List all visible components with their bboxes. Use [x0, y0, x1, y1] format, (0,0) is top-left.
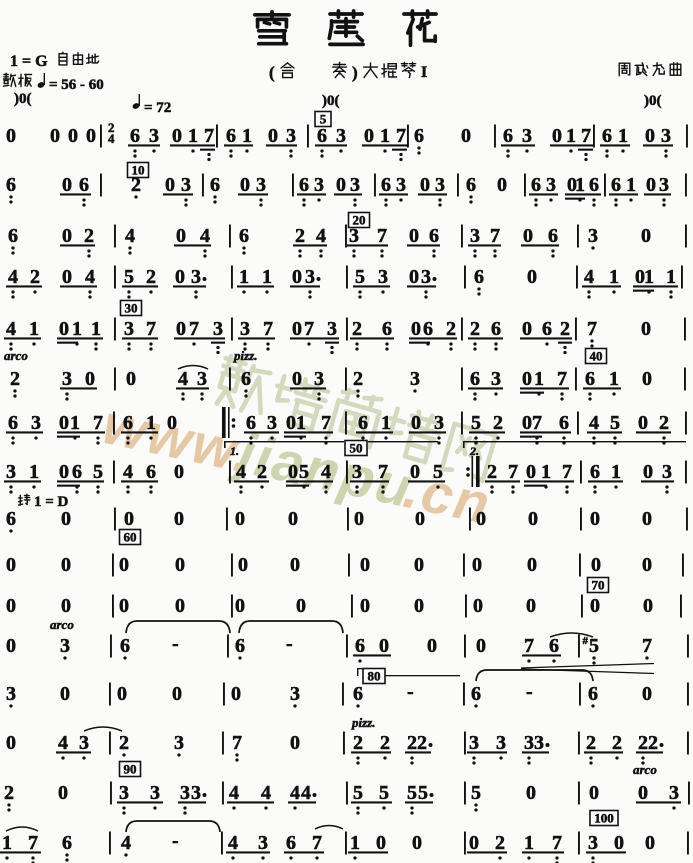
svg-text:2: 2	[146, 266, 156, 288]
svg-text:7: 7	[312, 832, 322, 854]
svg-text:5: 5	[379, 782, 389, 804]
svg-text:5: 5	[355, 266, 365, 288]
svg-text:4: 4	[178, 368, 188, 390]
svg-text:)0(: )0(	[322, 93, 340, 109]
svg-text:0: 0	[175, 266, 185, 288]
svg-text:1: 1	[524, 832, 534, 854]
svg-text:0: 0	[473, 595, 483, 617]
svg-text:0: 0	[292, 266, 302, 288]
svg-text:3: 3	[352, 461, 362, 483]
svg-text:0: 0	[292, 318, 302, 340]
svg-text:0: 0	[85, 368, 95, 390]
svg-text:7: 7	[587, 318, 597, 340]
svg-text:3: 3	[174, 732, 184, 754]
svg-text:1: 1	[611, 461, 621, 483]
svg-text:6: 6	[72, 461, 82, 483]
svg-text:0: 0	[172, 683, 182, 705]
svg-text:3: 3	[496, 732, 506, 754]
svg-text:6: 6	[130, 125, 140, 147]
svg-text:0: 0	[552, 125, 562, 147]
svg-text:6: 6	[62, 832, 72, 854]
svg-text:0: 0	[364, 125, 374, 147]
svg-text:3: 3	[659, 174, 669, 196]
svg-text:0: 0	[62, 174, 72, 196]
svg-text:3: 3	[181, 174, 191, 196]
svg-text:0: 0	[410, 461, 420, 483]
svg-text:5: 5	[471, 782, 481, 804]
svg-text:6: 6	[355, 635, 365, 657]
svg-text:0: 0	[126, 368, 136, 390]
svg-text:2: 2	[84, 225, 94, 247]
svg-text:6: 6	[548, 225, 558, 247]
svg-text:2: 2	[493, 412, 503, 434]
svg-text:5: 5	[418, 782, 428, 804]
svg-text:)0(: )0(	[644, 93, 662, 109]
svg-text:3: 3	[327, 318, 337, 340]
svg-text:6: 6	[414, 125, 424, 147]
svg-text:3: 3	[305, 266, 315, 288]
svg-text:0: 0	[469, 832, 479, 854]
svg-text:6: 6	[589, 174, 599, 196]
svg-text:3: 3	[6, 683, 16, 705]
svg-text:6: 6	[474, 266, 484, 288]
svg-text:7: 7	[321, 412, 331, 434]
svg-text:2: 2	[119, 732, 129, 754]
svg-text:3: 3	[491, 368, 501, 390]
svg-text:3: 3	[31, 412, 41, 434]
svg-text:4: 4	[123, 461, 133, 483]
svg-text:6: 6	[317, 125, 327, 147]
svg-text:3: 3	[524, 732, 534, 754]
svg-text:0: 0	[231, 683, 241, 705]
svg-text:6: 6	[6, 508, 16, 530]
svg-text:6: 6	[429, 225, 439, 247]
svg-text:0: 0	[50, 125, 60, 147]
svg-text:6: 6	[299, 174, 309, 196]
svg-text:2: 2	[352, 318, 362, 340]
svg-text:6: 6	[542, 318, 552, 340]
svg-text:1: 1	[566, 125, 576, 147]
svg-text:0: 0	[526, 461, 536, 483]
svg-text:arco: arco	[50, 617, 74, 632]
svg-text:3: 3	[396, 174, 406, 196]
svg-text:0: 0	[590, 595, 600, 617]
svg-text:3: 3	[286, 125, 296, 147]
svg-text:2: 2	[638, 732, 648, 754]
svg-text:2: 2	[470, 318, 480, 340]
svg-text:0: 0	[290, 732, 300, 754]
svg-text:0: 0	[527, 266, 537, 288]
svg-text:3: 3	[522, 125, 532, 147]
svg-text:0: 0	[58, 782, 68, 804]
svg-text:0: 0	[86, 125, 96, 147]
svg-text:6: 6	[8, 225, 18, 247]
svg-text:0: 0	[119, 595, 129, 617]
svg-text:0: 0	[414, 554, 424, 576]
svg-text:3: 3	[79, 732, 89, 754]
svg-text:pizz.: pizz.	[233, 348, 257, 363]
svg-text:3: 3	[240, 318, 250, 340]
svg-text:3: 3	[350, 174, 360, 196]
svg-text:6: 6	[353, 683, 363, 705]
svg-text:1: 1	[350, 832, 360, 854]
svg-text:0: 0	[645, 832, 655, 854]
svg-text:3: 3	[378, 266, 388, 288]
svg-text:6: 6	[241, 368, 251, 390]
svg-text:0: 0	[614, 832, 624, 854]
svg-text:0: 0	[336, 174, 346, 196]
svg-text:1: 1	[242, 125, 252, 147]
svg-text:4: 4	[121, 832, 131, 854]
svg-text:7: 7	[204, 125, 214, 147]
svg-text:0: 0	[497, 174, 507, 196]
svg-text:7: 7	[146, 318, 156, 340]
svg-text:6: 6	[531, 174, 541, 196]
svg-text:2: 2	[4, 782, 14, 804]
svg-text:2: 2	[380, 732, 390, 754]
svg-text:0: 0	[292, 368, 302, 390]
svg-text:0: 0	[296, 595, 306, 617]
svg-text:6: 6	[239, 225, 249, 247]
svg-text:0: 0	[59, 318, 69, 340]
svg-text:0: 0	[174, 508, 184, 530]
svg-text:0: 0	[61, 595, 71, 617]
svg-text:0: 0	[476, 635, 486, 657]
svg-text:6: 6	[588, 683, 598, 705]
svg-text:0: 0	[290, 554, 300, 576]
svg-text:6: 6	[123, 412, 133, 434]
svg-text:2.: 2.	[469, 444, 479, 458]
svg-text:0: 0	[62, 266, 72, 288]
svg-text:6: 6	[602, 125, 612, 147]
svg-text:7: 7	[557, 368, 567, 390]
svg-text:4: 4	[228, 832, 238, 854]
svg-text:0: 0	[642, 554, 652, 576]
svg-text:3: 3	[149, 125, 159, 147]
svg-text:0: 0	[175, 595, 185, 617]
svg-text:3: 3	[534, 732, 544, 754]
svg-text:3: 3	[258, 832, 268, 854]
svg-text:0: 0	[528, 508, 538, 530]
svg-text:2: 2	[131, 174, 141, 196]
svg-text:7: 7	[396, 125, 406, 147]
svg-text:1: 1	[70, 412, 80, 434]
svg-text:5: 5	[610, 412, 620, 434]
svg-text:6: 6	[8, 412, 18, 434]
svg-text:0: 0	[268, 125, 278, 147]
svg-text:0: 0	[6, 595, 16, 617]
svg-text:4: 4	[8, 266, 18, 288]
svg-text:0: 0	[175, 554, 185, 576]
svg-text:1: 1	[2, 832, 12, 854]
svg-text:4: 4	[589, 412, 599, 434]
svg-text:0: 0	[414, 595, 424, 617]
svg-text:2: 2	[659, 412, 669, 434]
svg-text:3: 3	[410, 368, 420, 390]
svg-text:0: 0	[235, 508, 245, 530]
svg-text:0: 0	[6, 732, 16, 754]
svg-text:3: 3	[662, 461, 672, 483]
svg-text:0: 0	[642, 368, 652, 390]
svg-text:7: 7	[93, 412, 103, 434]
svg-text:0: 0	[642, 683, 652, 705]
svg-text:5: 5	[433, 461, 443, 483]
svg-text:6: 6	[120, 635, 130, 657]
svg-text:30: 30	[125, 301, 138, 316]
svg-text:0: 0	[415, 508, 425, 530]
svg-text:7: 7	[532, 412, 542, 434]
svg-text:1: 1	[575, 174, 585, 196]
svg-text:4: 4	[290, 782, 300, 804]
svg-text:3: 3	[588, 225, 598, 247]
svg-text:2: 2	[495, 832, 505, 854]
svg-text:0: 0	[411, 318, 421, 340]
svg-text:7: 7	[263, 318, 273, 340]
svg-text:1: 1	[380, 125, 390, 147]
svg-text:2: 2	[353, 732, 363, 754]
svg-text:7: 7	[642, 635, 652, 657]
svg-text:0: 0	[527, 554, 537, 576]
svg-text:7: 7	[189, 318, 199, 340]
svg-text:4: 4	[85, 266, 95, 288]
svg-text:)0(: )0(	[14, 91, 32, 107]
svg-text:3: 3	[349, 225, 359, 247]
svg-text:0: 0	[174, 461, 184, 483]
svg-text:3: 3	[421, 266, 431, 288]
svg-text:90: 90	[124, 762, 137, 777]
svg-text:4: 4	[125, 225, 135, 247]
svg-text:-: -	[172, 830, 179, 852]
svg-text:5: 5	[471, 412, 481, 434]
svg-text:0: 0	[638, 782, 648, 804]
svg-text:1: 1	[29, 461, 39, 483]
svg-text:6: 6	[382, 318, 392, 340]
svg-text:0: 0	[522, 318, 532, 340]
svg-text:0: 0	[472, 554, 482, 576]
svg-text:1 = G: 1 = G	[10, 53, 48, 70]
svg-text:0: 0	[589, 782, 599, 804]
svg-text:0: 0	[641, 225, 651, 247]
svg-text:0: 0	[522, 368, 532, 390]
svg-text:1: 1	[609, 266, 619, 288]
svg-text:0: 0	[286, 412, 296, 434]
svg-text:0: 0	[641, 318, 651, 340]
svg-text:40: 40	[590, 349, 603, 364]
svg-text:4: 4	[321, 461, 331, 483]
svg-text:0: 0	[124, 508, 134, 530]
svg-text:0: 0	[522, 412, 532, 434]
svg-text:6: 6	[226, 125, 236, 147]
svg-text:1.: 1.	[230, 444, 239, 458]
svg-text:0: 0	[176, 318, 186, 340]
svg-text:3: 3	[314, 174, 324, 196]
svg-text:0: 0	[235, 595, 245, 617]
svg-text:0: 0	[62, 225, 72, 247]
svg-text:6: 6	[381, 174, 391, 196]
svg-text:3: 3	[6, 461, 16, 483]
svg-text:6: 6	[503, 125, 513, 147]
svg-text:1: 1	[534, 368, 544, 390]
svg-text:0: 0	[6, 635, 16, 657]
svg-text:0: 0	[59, 461, 69, 483]
svg-text:1: 1	[239, 266, 249, 288]
svg-text:I: I	[421, 64, 427, 81]
svg-text:-: -	[407, 681, 414, 703]
svg-text:2: 2	[612, 732, 622, 754]
svg-text:(: (	[269, 63, 275, 82]
svg-text:2: 2	[487, 461, 497, 483]
svg-text:1: 1	[296, 412, 306, 434]
svg-text:4: 4	[261, 782, 271, 804]
svg-text:1: 1	[146, 412, 156, 434]
svg-text:80: 80	[368, 669, 381, 684]
svg-text:6: 6	[470, 368, 480, 390]
svg-text:1: 1	[609, 368, 619, 390]
svg-text:0: 0	[376, 832, 386, 854]
svg-text:2: 2	[10, 368, 20, 390]
svg-text:3: 3	[669, 782, 679, 804]
svg-text:0: 0	[409, 225, 419, 247]
svg-text:3: 3	[256, 174, 266, 196]
svg-text:0: 0	[526, 782, 536, 804]
svg-text:pizz.: pizz.	[351, 715, 375, 730]
svg-text:3: 3	[469, 732, 479, 754]
svg-text:1: 1	[29, 318, 39, 340]
svg-text:2: 2	[295, 225, 305, 247]
svg-text:3: 3	[470, 225, 480, 247]
svg-text:6: 6	[549, 635, 559, 657]
svg-text:0: 0	[172, 125, 182, 147]
svg-text:60: 60	[124, 530, 137, 545]
svg-text:1: 1	[91, 318, 101, 340]
svg-text:0: 0	[61, 508, 71, 530]
svg-text:7: 7	[490, 225, 500, 247]
svg-text:1: 1	[626, 174, 636, 196]
svg-text:0: 0	[176, 225, 186, 247]
svg-text:3: 3	[213, 318, 223, 340]
svg-text:0: 0	[59, 412, 69, 434]
svg-text:5: 5	[407, 782, 417, 804]
svg-text:0: 0	[60, 683, 70, 705]
svg-text:1: 1	[644, 266, 654, 288]
svg-text:3: 3	[314, 368, 324, 390]
svg-text:0: 0	[165, 174, 175, 196]
svg-text:0: 0	[238, 554, 248, 576]
svg-text:6: 6	[611, 174, 621, 196]
svg-text:1: 1	[666, 266, 676, 288]
svg-text:0: 0	[476, 508, 486, 530]
svg-text:3: 3	[434, 412, 444, 434]
svg-text:70: 70	[592, 578, 605, 593]
svg-text:3: 3	[267, 412, 277, 434]
svg-text:0: 0	[638, 412, 648, 434]
svg-text:0: 0	[427, 635, 437, 657]
svg-text:4: 4	[58, 732, 68, 754]
svg-text:3: 3	[435, 174, 445, 196]
svg-text:3: 3	[119, 782, 129, 804]
svg-text:7: 7	[304, 318, 314, 340]
svg-text:4: 4	[301, 782, 311, 804]
svg-text:7: 7	[562, 461, 572, 483]
svg-text:3: 3	[124, 318, 134, 340]
svg-text:0: 0	[360, 595, 370, 617]
svg-text:5: 5	[93, 461, 103, 483]
svg-text:1: 1	[262, 266, 272, 288]
svg-text:6: 6	[246, 412, 256, 434]
svg-text:0: 0	[643, 461, 653, 483]
svg-text:6: 6	[585, 368, 595, 390]
svg-text:0: 0	[409, 266, 419, 288]
svg-text:6: 6	[210, 174, 220, 196]
svg-text:0: 0	[119, 554, 129, 576]
svg-text:3: 3	[197, 368, 207, 390]
svg-text:3: 3	[180, 782, 190, 804]
svg-text:6: 6	[423, 318, 433, 340]
svg-text:2: 2	[648, 732, 658, 754]
svg-text:3: 3	[290, 683, 300, 705]
svg-text:0: 0	[523, 225, 533, 247]
svg-text:7: 7	[232, 732, 242, 754]
svg-text:3: 3	[62, 368, 72, 390]
svg-text:): )	[352, 63, 358, 82]
svg-text:arco: arco	[4, 348, 28, 363]
svg-text:0: 0	[354, 508, 364, 530]
svg-text:0: 0	[61, 554, 71, 576]
svg-text:-: -	[526, 681, 533, 703]
svg-text:0: 0	[6, 554, 16, 576]
svg-text:7: 7	[524, 635, 534, 657]
svg-text:0: 0	[526, 595, 536, 617]
svg-text:3: 3	[546, 174, 556, 196]
svg-text:1: 1	[618, 125, 628, 147]
svg-text:6: 6	[559, 412, 569, 434]
svg-text:4: 4	[6, 318, 16, 340]
svg-text:5: 5	[353, 782, 363, 804]
svg-text:2: 2	[353, 368, 363, 390]
svg-text:4: 4	[108, 131, 115, 146]
svg-text:1: 1	[541, 461, 551, 483]
svg-text:0: 0	[411, 412, 421, 434]
svg-text:1: 1	[381, 412, 391, 434]
svg-text:1: 1	[72, 318, 82, 340]
svg-text:0: 0	[379, 635, 389, 657]
svg-text:2: 2	[586, 732, 596, 754]
svg-text:#: #	[583, 635, 589, 647]
svg-text:7: 7	[378, 461, 388, 483]
svg-text:-: -	[172, 633, 179, 655]
svg-text:0: 0	[288, 461, 298, 483]
svg-text:3: 3	[588, 832, 598, 854]
svg-text:50: 50	[350, 441, 363, 456]
svg-text:0: 0	[590, 508, 600, 530]
svg-text:1: 1	[188, 125, 198, 147]
svg-text:0: 0	[420, 174, 430, 196]
svg-text:6: 6	[358, 412, 368, 434]
svg-text:2: 2	[257, 461, 267, 483]
svg-text:= 72: = 72	[144, 100, 171, 116]
svg-text:7: 7	[508, 461, 518, 483]
svg-text:7: 7	[377, 225, 387, 247]
svg-text:-: -	[286, 633, 293, 655]
svg-text:0: 0	[117, 683, 127, 705]
svg-text:7: 7	[581, 125, 591, 147]
svg-text:4: 4	[200, 225, 210, 247]
svg-text:5: 5	[299, 461, 309, 483]
svg-text:0: 0	[591, 554, 601, 576]
svg-text:0: 0	[360, 554, 370, 576]
svg-text:0: 0	[646, 174, 656, 196]
svg-text:2: 2	[446, 318, 456, 340]
